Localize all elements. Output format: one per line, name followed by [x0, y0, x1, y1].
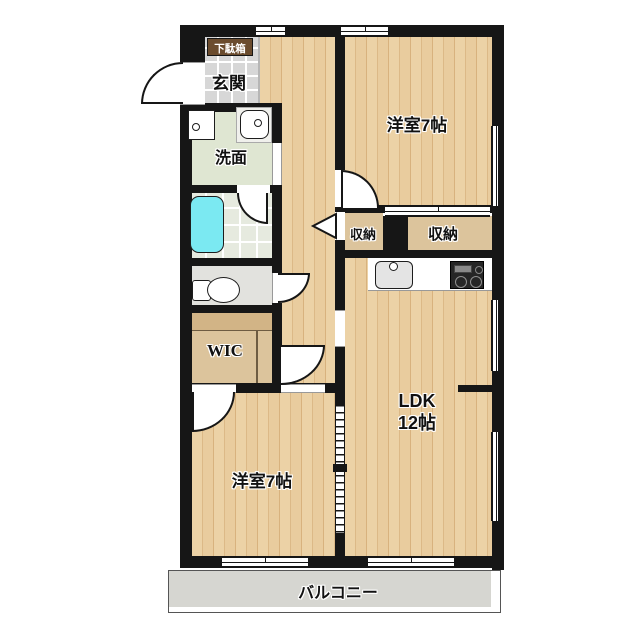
window-balcony-ldk	[368, 556, 454, 568]
window-ticks-3	[500, 432, 504, 521]
ldk-opening	[335, 310, 345, 347]
shoe-cabinet: 下駄箱	[207, 38, 253, 56]
stove-icon	[450, 261, 484, 289]
wall-closet-block	[383, 216, 408, 258]
bathtub-icon	[190, 196, 224, 253]
ldk-label-line2: 12帖	[374, 413, 460, 435]
toilet-bowl-icon	[207, 277, 240, 303]
wic-shelf	[190, 313, 272, 331]
wall-closet-kitchen	[335, 250, 504, 258]
wall-toilet-wic	[180, 305, 282, 313]
closet-small-door-triangle	[310, 212, 338, 240]
sliding-partition-divider	[333, 464, 347, 472]
bedroom-bottom-doorway	[281, 384, 325, 393]
bedroom-bottom-label: 洋室7帖	[207, 467, 317, 492]
entrance-hall-floor	[260, 37, 335, 103]
balcony-label: バルコニー	[268, 579, 408, 603]
closet-large-label: 収納	[412, 223, 474, 244]
window-right-bedroom-top	[491, 126, 500, 206]
wall-left	[180, 105, 192, 568]
window-top-bedroom	[341, 25, 388, 37]
ldk-label: LDK 12帖	[374, 391, 460, 434]
bedroom-top-label: 洋室7帖	[362, 111, 472, 136]
floor-plan: 下駄箱 玄関 洗面 WIC 収納 収納 洋室7帖 洋室7帖 LDK 12帖 バル…	[0, 0, 640, 640]
closet-small-label: 収納	[340, 224, 386, 243]
window-right-ldk-upper	[491, 300, 500, 371]
washer-drain-icon	[192, 123, 200, 131]
wall-ldk-stub	[458, 385, 504, 392]
window-balcony-bedroom	[222, 556, 308, 568]
wic-label: WIC	[190, 341, 260, 361]
window-ticks-2	[500, 300, 504, 371]
ldk-label-line1: LDK	[374, 391, 460, 413]
entrance-label: 玄関	[197, 69, 261, 94]
wall-bath-toilet	[180, 258, 282, 266]
wall-partition-south	[335, 533, 345, 556]
kitchen-faucet-icon	[389, 262, 398, 271]
window-ticks-1	[500, 126, 504, 206]
bathroom-doorway	[237, 185, 270, 193]
shoe-cabinet-label: 下駄箱	[214, 43, 246, 55]
washroom-doorway	[272, 143, 282, 185]
washroom-label: 洗面	[194, 144, 268, 168]
front-door-swing	[141, 62, 183, 104]
window-top-hall	[256, 25, 285, 37]
window-right-ldk-lower	[491, 432, 500, 521]
wall-left-entrance	[180, 25, 205, 62]
washbasin-faucet-icon	[254, 119, 262, 127]
closet-sliding-door	[385, 205, 490, 217]
